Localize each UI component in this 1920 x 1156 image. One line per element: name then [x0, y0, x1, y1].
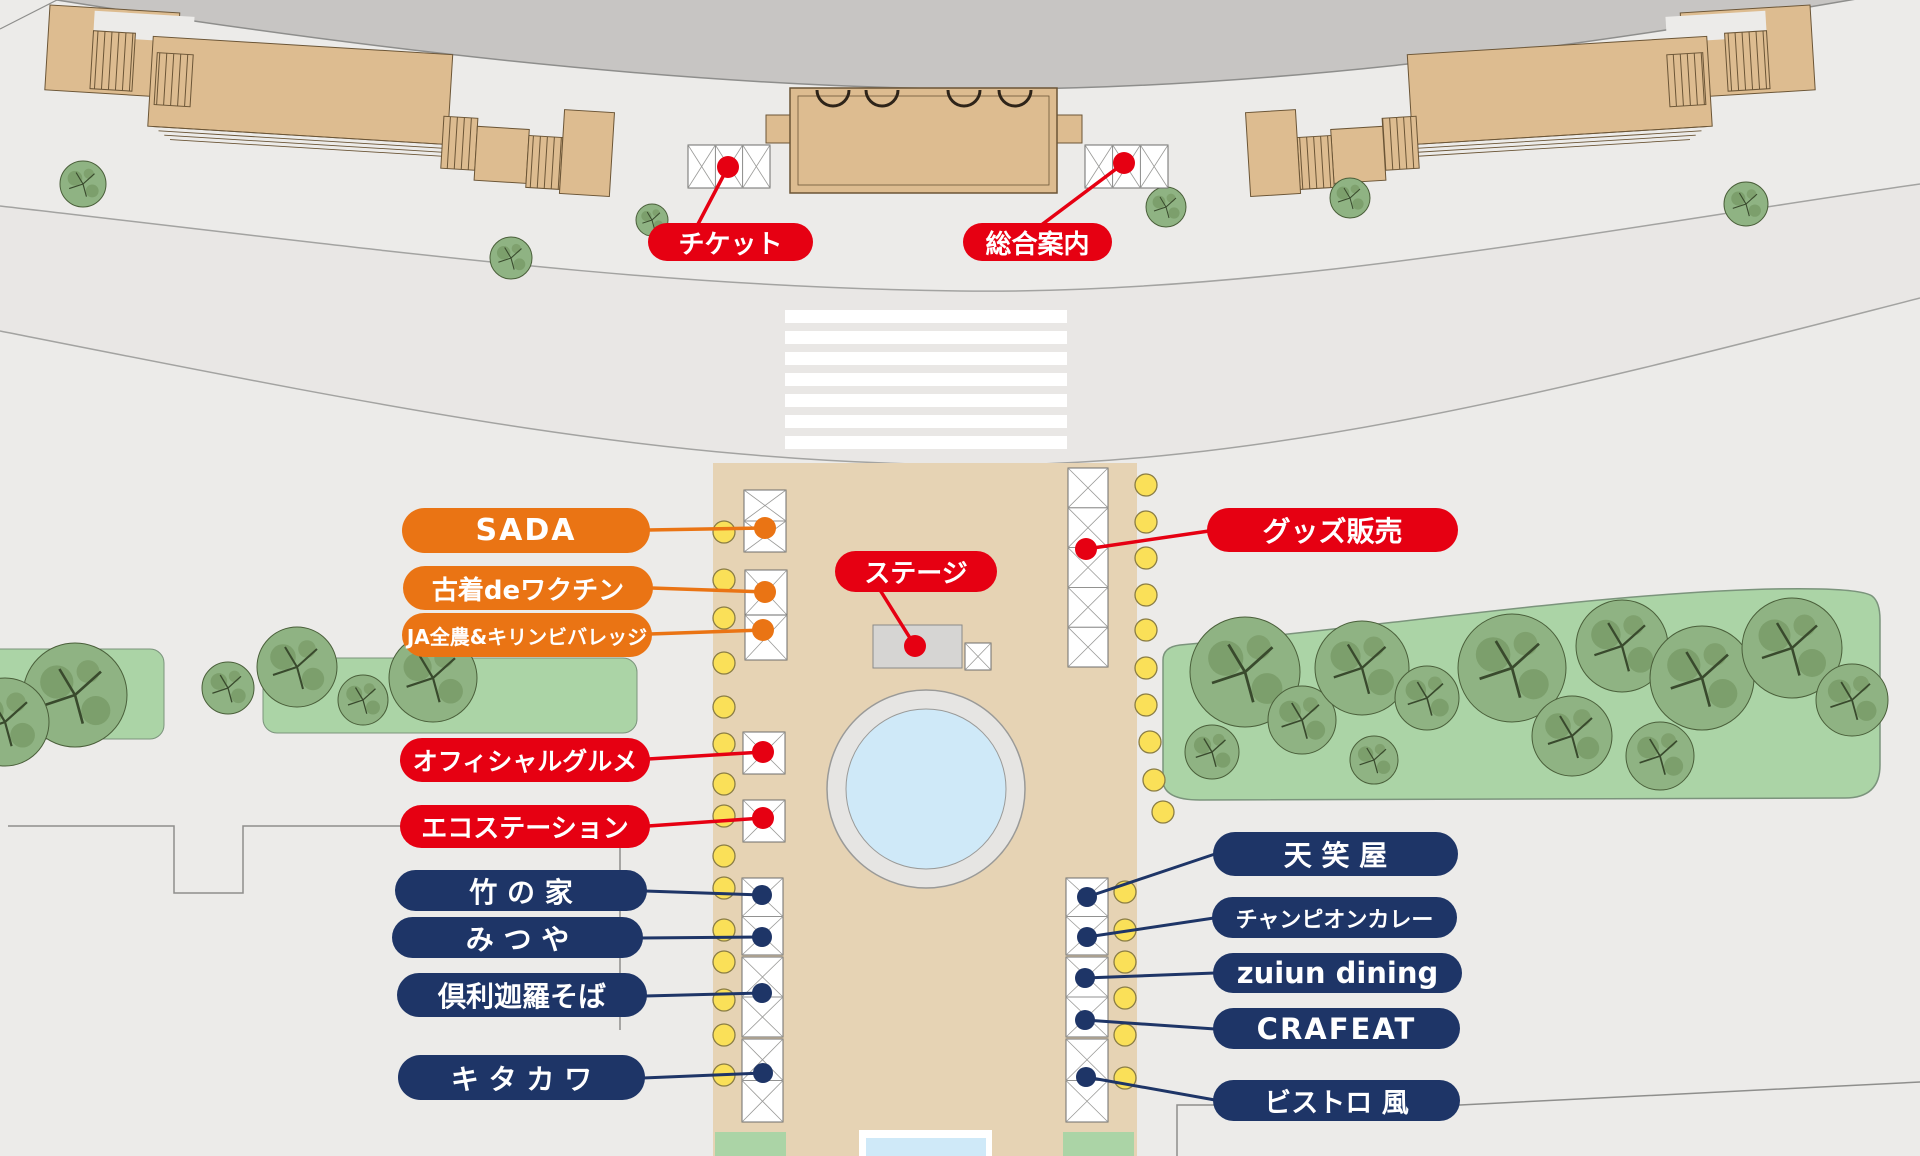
lamp-icon — [713, 773, 735, 795]
pool-water — [866, 1138, 986, 1156]
crosswalk-stripe — [785, 436, 1067, 449]
central-building — [766, 88, 1082, 193]
connector-line — [641, 937, 762, 938]
planter-bottom-left — [715, 1132, 786, 1156]
planter-bottom-right — [1063, 1132, 1134, 1156]
lamp-icon — [713, 569, 735, 591]
label-take-no-ie: 竹 の 家 — [395, 870, 647, 911]
label-eco-station: エコステーション — [400, 805, 650, 848]
crosswalk-stripe — [785, 310, 1067, 323]
lamp-icon — [713, 951, 735, 973]
lamp-icon — [1114, 1024, 1136, 1046]
connector-dot — [717, 156, 739, 178]
label-ja-kirin: JA全農&キリンビバレッジ — [402, 613, 652, 657]
tent-icon — [965, 643, 991, 670]
label-ticket: チケット — [648, 223, 813, 261]
label-official-gourmet: オフィシャルグルメ — [400, 738, 650, 782]
lamp-icon — [1135, 694, 1157, 716]
connector-dot — [752, 807, 774, 829]
connector-dot — [752, 927, 772, 947]
connector-dot — [904, 635, 926, 657]
lamp-icon — [1135, 511, 1157, 533]
crosswalk-stripe — [785, 415, 1067, 428]
lamp-icon — [713, 805, 735, 827]
label-tenshoya: 天 笑 屋 — [1213, 832, 1458, 876]
label-info: 総合案内 — [963, 223, 1112, 261]
tree-icon — [1724, 182, 1768, 226]
lamp-icon — [1135, 584, 1157, 606]
connector-dot — [1077, 887, 1097, 907]
connector-dot — [1076, 1067, 1096, 1087]
label-furugi-vaccine: 古着deワクチン — [403, 566, 653, 610]
connector-dot — [754, 581, 776, 603]
tree-icon — [1626, 722, 1694, 790]
connector-dot — [1075, 538, 1097, 560]
connector-dot — [754, 517, 776, 539]
connector-dot — [1075, 1010, 1095, 1030]
lamp-icon — [1135, 619, 1157, 641]
lamp-icon — [713, 607, 735, 629]
lamp-icon — [1135, 474, 1157, 496]
tree-icon — [1330, 178, 1370, 218]
tree-icon — [338, 675, 388, 725]
label-champion-curry: チャンピオンカレー — [1212, 897, 1457, 938]
connector-dot — [1075, 968, 1095, 988]
lamp-icon — [713, 652, 735, 674]
connector-dot — [1113, 152, 1135, 174]
lamp-icon — [713, 845, 735, 867]
label-sada: SADA — [402, 508, 650, 553]
fountain-icon — [846, 709, 1006, 869]
tree-icon — [1395, 666, 1459, 730]
label-kitakawa: キ タ カ ワ — [398, 1055, 645, 1100]
lamp-icon — [1135, 657, 1157, 679]
label-mitsuya: み つ や — [392, 917, 643, 958]
tree-icon — [490, 237, 532, 279]
label-crafeat: CRAFEAT — [1213, 1008, 1460, 1049]
label-bistro-kaze: ビストロ 風 — [1213, 1080, 1460, 1121]
label-kurikara-soba: 倶利迦羅そば — [397, 973, 647, 1017]
connector-dot — [753, 1063, 773, 1083]
tent-icon — [1068, 468, 1108, 667]
lamp-icon — [1152, 801, 1174, 823]
lamp-icon — [713, 696, 735, 718]
crosswalk-stripe — [785, 373, 1067, 386]
lamp-icon — [1114, 987, 1136, 1009]
tree-icon — [1146, 187, 1186, 227]
lamp-icon — [1114, 951, 1136, 973]
label-zuiun-dining: zuiun dining — [1213, 953, 1462, 993]
lamp-icon — [1143, 769, 1165, 791]
tree-icon — [1350, 736, 1398, 784]
label-goods: グッズ販売 — [1207, 508, 1458, 552]
tree-icon — [202, 662, 254, 714]
tree-icon — [1185, 725, 1239, 779]
lamp-icon — [713, 877, 735, 899]
crosswalk-stripe — [785, 394, 1067, 407]
tree-icon — [1816, 664, 1888, 736]
tree-icon — [257, 627, 337, 707]
connector-dot — [752, 619, 774, 641]
lamp-icon — [713, 733, 735, 755]
lamp-icon — [713, 1024, 735, 1046]
lamp-icon — [1139, 731, 1161, 753]
lamp-icon — [1135, 547, 1157, 569]
label-stage: ステージ — [835, 551, 997, 592]
lamp-icon — [713, 521, 735, 543]
crosswalk-stripe — [785, 352, 1067, 365]
connector-dot — [752, 741, 774, 763]
tree-icon — [1650, 626, 1754, 730]
connector-dot — [752, 885, 772, 905]
venue-map: チケット 総合案内 SADA 古着deワクチン JA全農&キリンビバレッジ ステ… — [0, 0, 1920, 1156]
tree-icon — [1532, 696, 1612, 776]
connector-line — [648, 528, 765, 530]
connector-dot — [752, 983, 772, 1003]
connector-dot — [1077, 927, 1097, 947]
crosswalk-stripe — [785, 331, 1067, 344]
tree-icon — [60, 161, 106, 207]
